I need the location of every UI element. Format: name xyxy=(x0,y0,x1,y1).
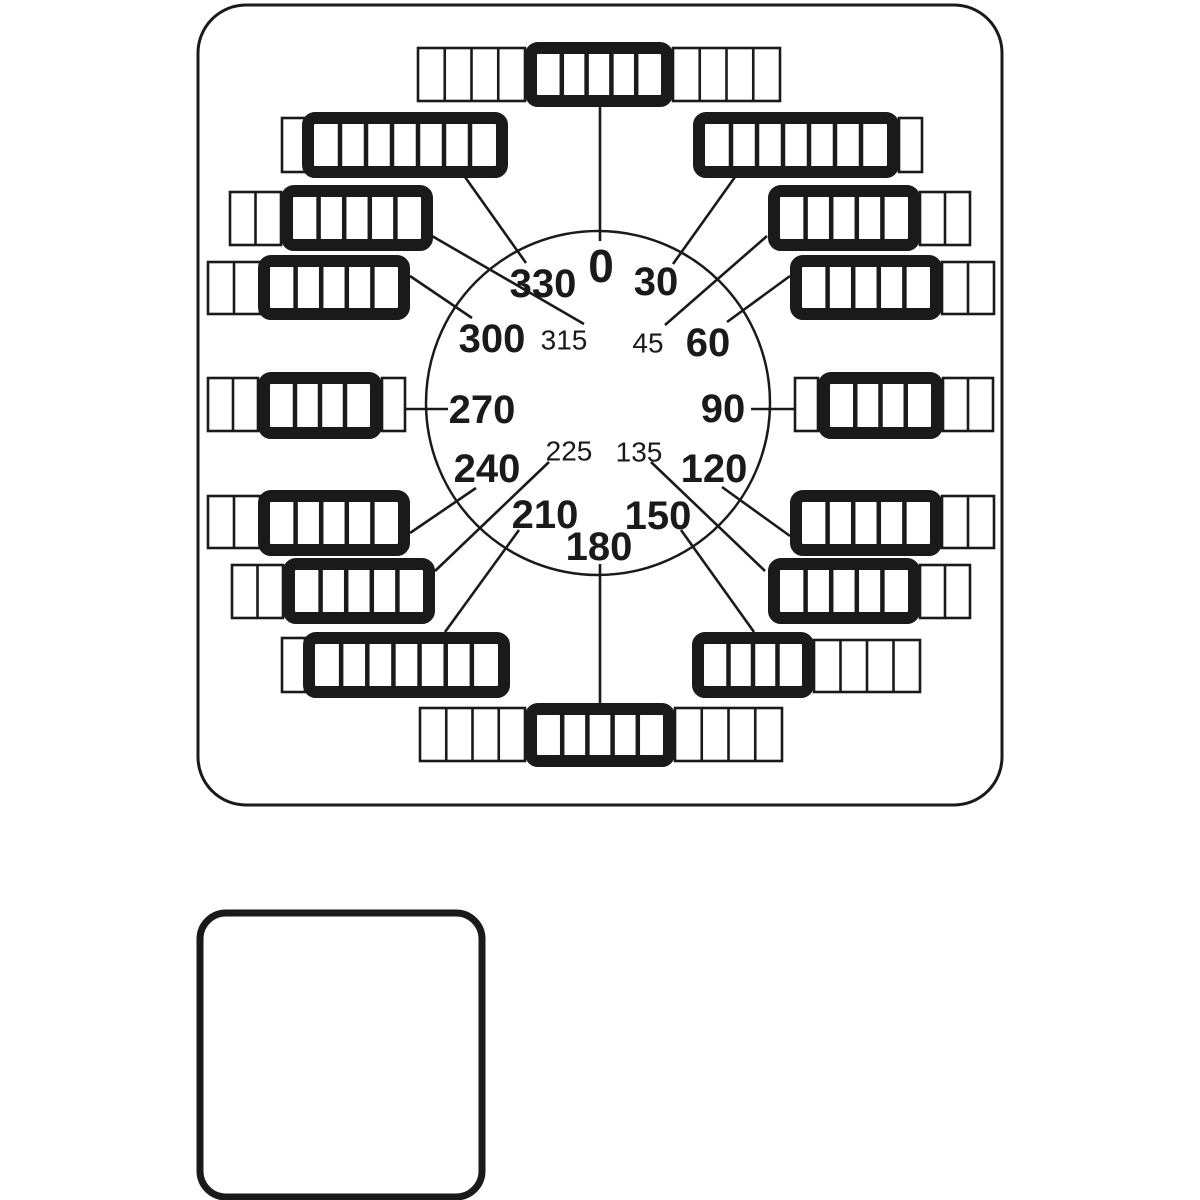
degree-label-90: 90 xyxy=(701,387,746,431)
contact-block xyxy=(309,638,504,692)
switch-block-0 xyxy=(418,48,780,101)
degree-label-45: 45 xyxy=(632,328,663,359)
contact-strip xyxy=(899,118,922,172)
contact-block xyxy=(264,496,404,550)
degree-label-240: 240 xyxy=(454,447,521,491)
contact-block xyxy=(796,261,936,314)
contact-block xyxy=(289,564,429,618)
contact-strip xyxy=(382,378,405,431)
degree-label-60: 60 xyxy=(686,321,731,365)
contact-strip xyxy=(282,638,305,692)
switch-block-240 xyxy=(208,496,404,550)
switch-block-60 xyxy=(796,261,994,314)
degree-label-300: 300 xyxy=(459,317,526,361)
blank-panel xyxy=(200,913,482,1197)
switch-block-180 xyxy=(420,708,782,761)
contact-block xyxy=(774,564,914,618)
switch-block-330 xyxy=(282,118,502,172)
degree-label-330: 330 xyxy=(510,262,577,306)
degree-label-135: 135 xyxy=(616,437,663,468)
degree-label-225: 225 xyxy=(546,436,593,467)
contact-block xyxy=(774,191,914,245)
switch-block-150 xyxy=(698,638,920,692)
contact-block xyxy=(264,261,404,314)
switch-block-210 xyxy=(282,638,504,692)
switch-block-300 xyxy=(208,261,404,314)
degree-label-210: 210 xyxy=(512,493,579,537)
contact-strip xyxy=(282,118,305,172)
contact-block xyxy=(531,48,667,101)
switch-block-315 xyxy=(230,191,427,245)
switch-block-135 xyxy=(774,564,970,618)
contact-block xyxy=(287,191,427,245)
contact-block xyxy=(531,709,669,761)
switch-block-270 xyxy=(208,378,405,433)
degree-label-150: 150 xyxy=(625,494,692,538)
switch-block-90 xyxy=(795,378,993,433)
degree-label-120: 120 xyxy=(681,447,748,491)
switch-block-45 xyxy=(774,191,970,245)
contact-strip xyxy=(795,378,818,431)
diagram-canvas: 0306090120150180210240270300330451352253… xyxy=(0,0,1200,1200)
switch-block-225 xyxy=(232,564,429,618)
rotary-dial-diagram: 0306090120150180210240270300330451352253… xyxy=(0,0,1200,1200)
degree-label-270: 270 xyxy=(449,388,516,432)
degree-label-315: 315 xyxy=(541,325,588,356)
switch-block-120 xyxy=(796,496,994,550)
switch-block-30 xyxy=(699,118,922,172)
degree-label-30: 30 xyxy=(634,260,679,304)
contact-block xyxy=(796,496,936,550)
contact-block xyxy=(308,118,502,172)
degree-label-0: 0 xyxy=(588,240,614,292)
contact-block xyxy=(699,118,893,172)
